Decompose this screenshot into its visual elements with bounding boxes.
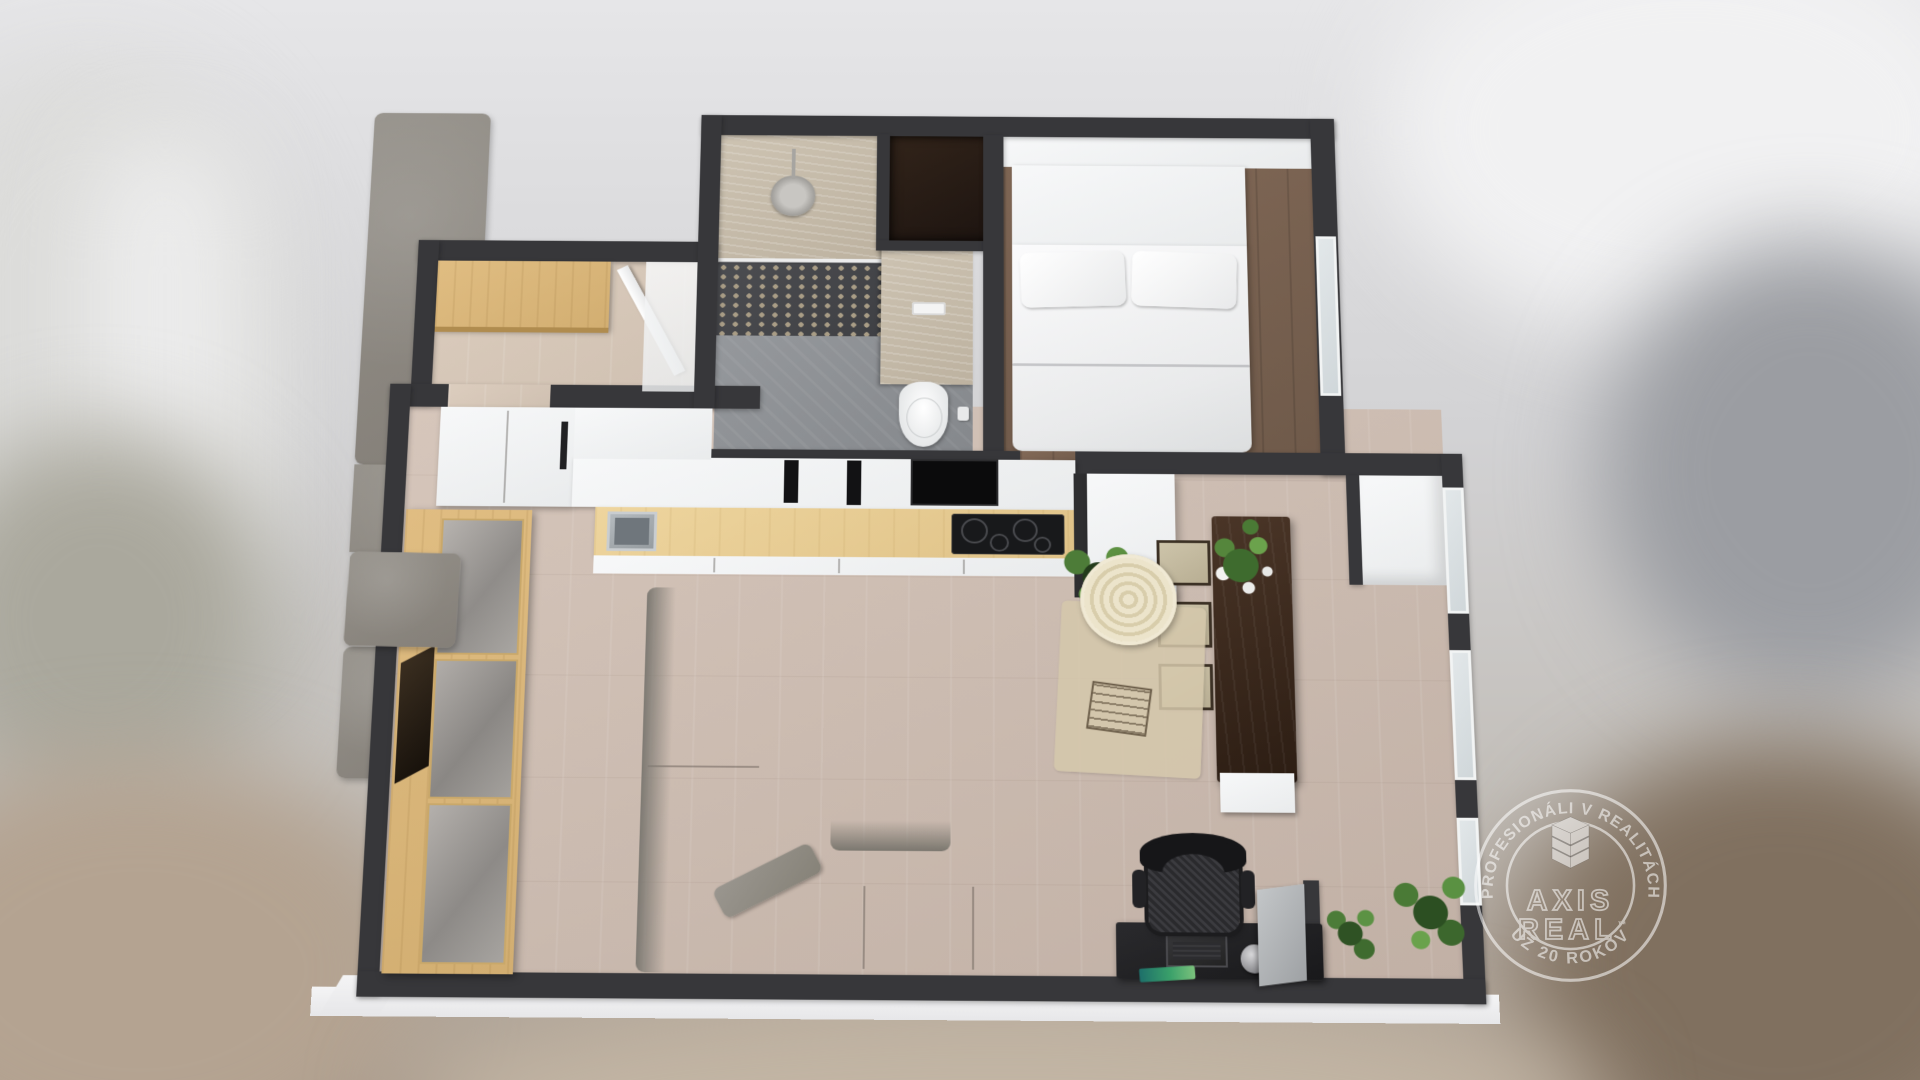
rattan-round-chair	[1080, 554, 1178, 646]
base-front-seam-3	[963, 560, 965, 574]
chair-armrest-left	[1132, 870, 1146, 908]
floorplan-3d	[322, 113, 1487, 1022]
toilet-brush	[958, 407, 969, 421]
wall-hall-north	[418, 240, 719, 262]
console-end-cap	[1220, 773, 1295, 813]
bed-headboard-wardrobe	[1012, 165, 1247, 248]
leaning-gray-panel	[1257, 884, 1307, 987]
hall-wardrobe-edge	[435, 327, 609, 333]
hall-oak-wardrobe	[435, 261, 611, 331]
wardrobe-mirror-panel-3	[420, 803, 512, 964]
white-bay-corner	[1359, 475, 1446, 585]
kitchen-base-front	[593, 555, 1076, 576]
folding-chair	[1086, 681, 1152, 737]
watermark-trademark: ™	[1618, 920, 1627, 930]
sink-basin	[614, 518, 649, 545]
wardrobe-open-slot	[394, 645, 434, 784]
kitchen-wall-filler	[573, 408, 712, 460]
burner-large-2	[1013, 519, 1038, 542]
hall-door-frame	[642, 262, 697, 392]
armchair-back	[830, 820, 950, 851]
isometric-building-icon	[1552, 817, 1589, 868]
watermark-brand-real: REAL	[1518, 914, 1617, 946]
burner-large-1	[961, 518, 988, 543]
laptop-keyboard	[1173, 942, 1221, 960]
toilet-seat-line	[906, 397, 942, 438]
toilet-flush-plate	[912, 302, 946, 315]
wall-bath-north	[701, 115, 1334, 139]
wall-niche-bottom	[876, 240, 993, 251]
sofa-bottom-seam-2	[972, 887, 974, 970]
ottoman	[343, 551, 461, 648]
pillow-left	[1019, 250, 1126, 307]
console-plant-orchid	[1192, 501, 1300, 619]
pillow-right	[1131, 251, 1237, 310]
wall-bedroom-west	[983, 135, 1004, 453]
cabinet-slot-1	[784, 460, 799, 503]
office-chair-backrest	[1139, 833, 1246, 874]
base-front-seam-1	[713, 558, 715, 572]
kitchen-upper-cabinets	[572, 457, 1076, 510]
built-in-tv-niche	[911, 459, 999, 506]
bedroom-back-wall	[1003, 135, 1313, 169]
cabinet-slot-2	[847, 460, 862, 505]
storage-niche	[889, 134, 993, 241]
shower-floor-mosaic	[716, 262, 881, 336]
base-front-seam-2	[838, 559, 840, 573]
wall-niche-left	[876, 134, 890, 243]
agency-watermark: PROFESIONÁLI V REALITÁCH UŽ 20 ROKOV AXI…	[1468, 783, 1673, 988]
chair-armrest-right	[1241, 870, 1256, 908]
burner-small-1	[990, 534, 1009, 552]
shower-arm	[792, 149, 796, 179]
hall-door-opening	[448, 384, 551, 407]
wardrobe-mirror-panel-2	[428, 659, 518, 799]
screenshot-canvas: PROFESIONÁLI V REALITÁCH UŽ 20 ROKOV AXI…	[0, 0, 1920, 1080]
watermark-brand-axis: AXIS	[1527, 885, 1614, 917]
